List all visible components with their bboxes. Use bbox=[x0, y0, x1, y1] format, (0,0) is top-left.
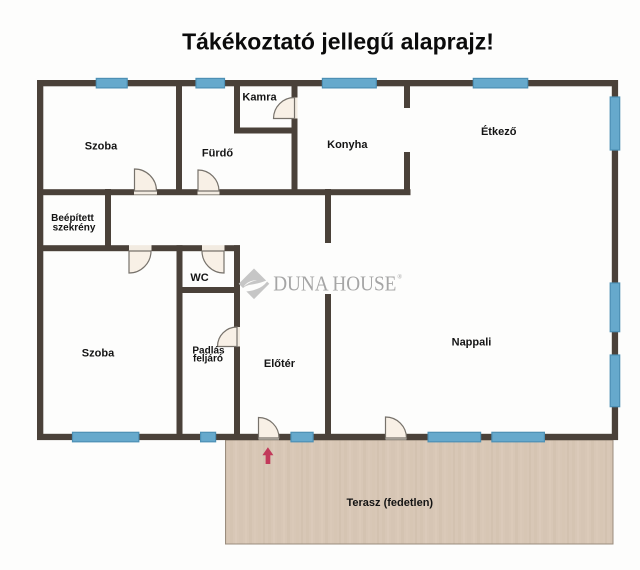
svg-text:Szoba: Szoba bbox=[82, 348, 115, 360]
svg-text:®: ® bbox=[397, 273, 402, 280]
svg-text:Előtér: Előtér bbox=[264, 358, 296, 370]
svg-text:szekrény: szekrény bbox=[53, 223, 96, 234]
svg-text:Konyha: Konyha bbox=[327, 139, 368, 151]
svg-text:feljáró: feljáró bbox=[193, 354, 223, 365]
svg-text:DUNA HOUSE: DUNA HOUSE bbox=[273, 274, 396, 296]
svg-text:Étkező: Étkező bbox=[481, 125, 517, 138]
svg-text:Szoba: Szoba bbox=[85, 140, 118, 152]
svg-text:Terasz (fedetlen): Terasz (fedetlen) bbox=[347, 497, 434, 509]
svg-text:Tákékoztató jellegű alaprajz!: Tákékoztató jellegű alaprajz! bbox=[182, 29, 494, 55]
svg-text:WC: WC bbox=[190, 272, 208, 284]
svg-text:Nappali: Nappali bbox=[452, 337, 492, 349]
svg-text:Kamra: Kamra bbox=[242, 92, 277, 104]
svg-text:Fürdő: Fürdő bbox=[202, 148, 233, 160]
